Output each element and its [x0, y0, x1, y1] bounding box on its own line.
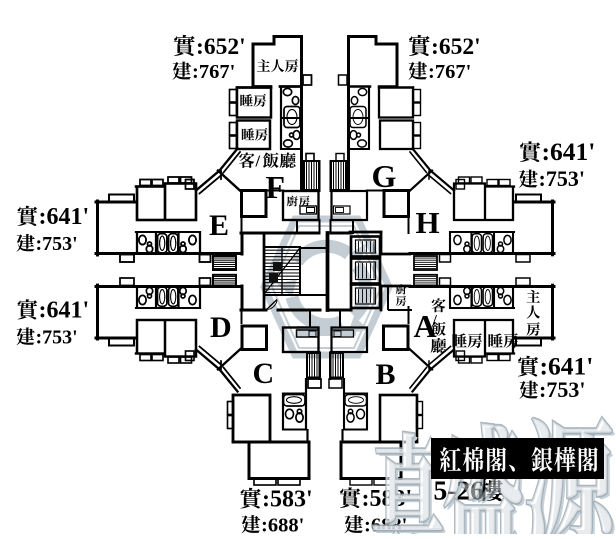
svg-text:E: E [209, 209, 229, 242]
svg-text:/: / [255, 152, 261, 171]
svg-text:B: B [376, 358, 396, 391]
svg-text::767': :767' [428, 61, 471, 83]
svg-text:D: D [210, 311, 232, 344]
svg-text::767': :767' [192, 61, 235, 83]
svg-text:G: G [372, 158, 397, 194]
svg-text:F: F [266, 169, 286, 205]
svg-text:H: H [416, 205, 440, 240]
svg-text::753': :753' [539, 377, 585, 402]
svg-text:C: C [253, 357, 275, 390]
svg-text::641': :641' [39, 298, 90, 324]
svg-text::641': :641' [542, 137, 596, 166]
svg-text::583': :583' [262, 487, 313, 513]
svg-text::641': :641' [39, 204, 90, 230]
svg-text::753': :753' [36, 233, 78, 255]
svg-text::652': :652' [196, 34, 246, 60]
svg-text:5-26: 5-26 [434, 475, 484, 506]
svg-text::753': :753' [36, 327, 78, 349]
svg-text::652': :652' [431, 34, 481, 60]
svg-text::753': :753' [539, 166, 585, 191]
svg-text::688': :688' [261, 515, 304, 535]
